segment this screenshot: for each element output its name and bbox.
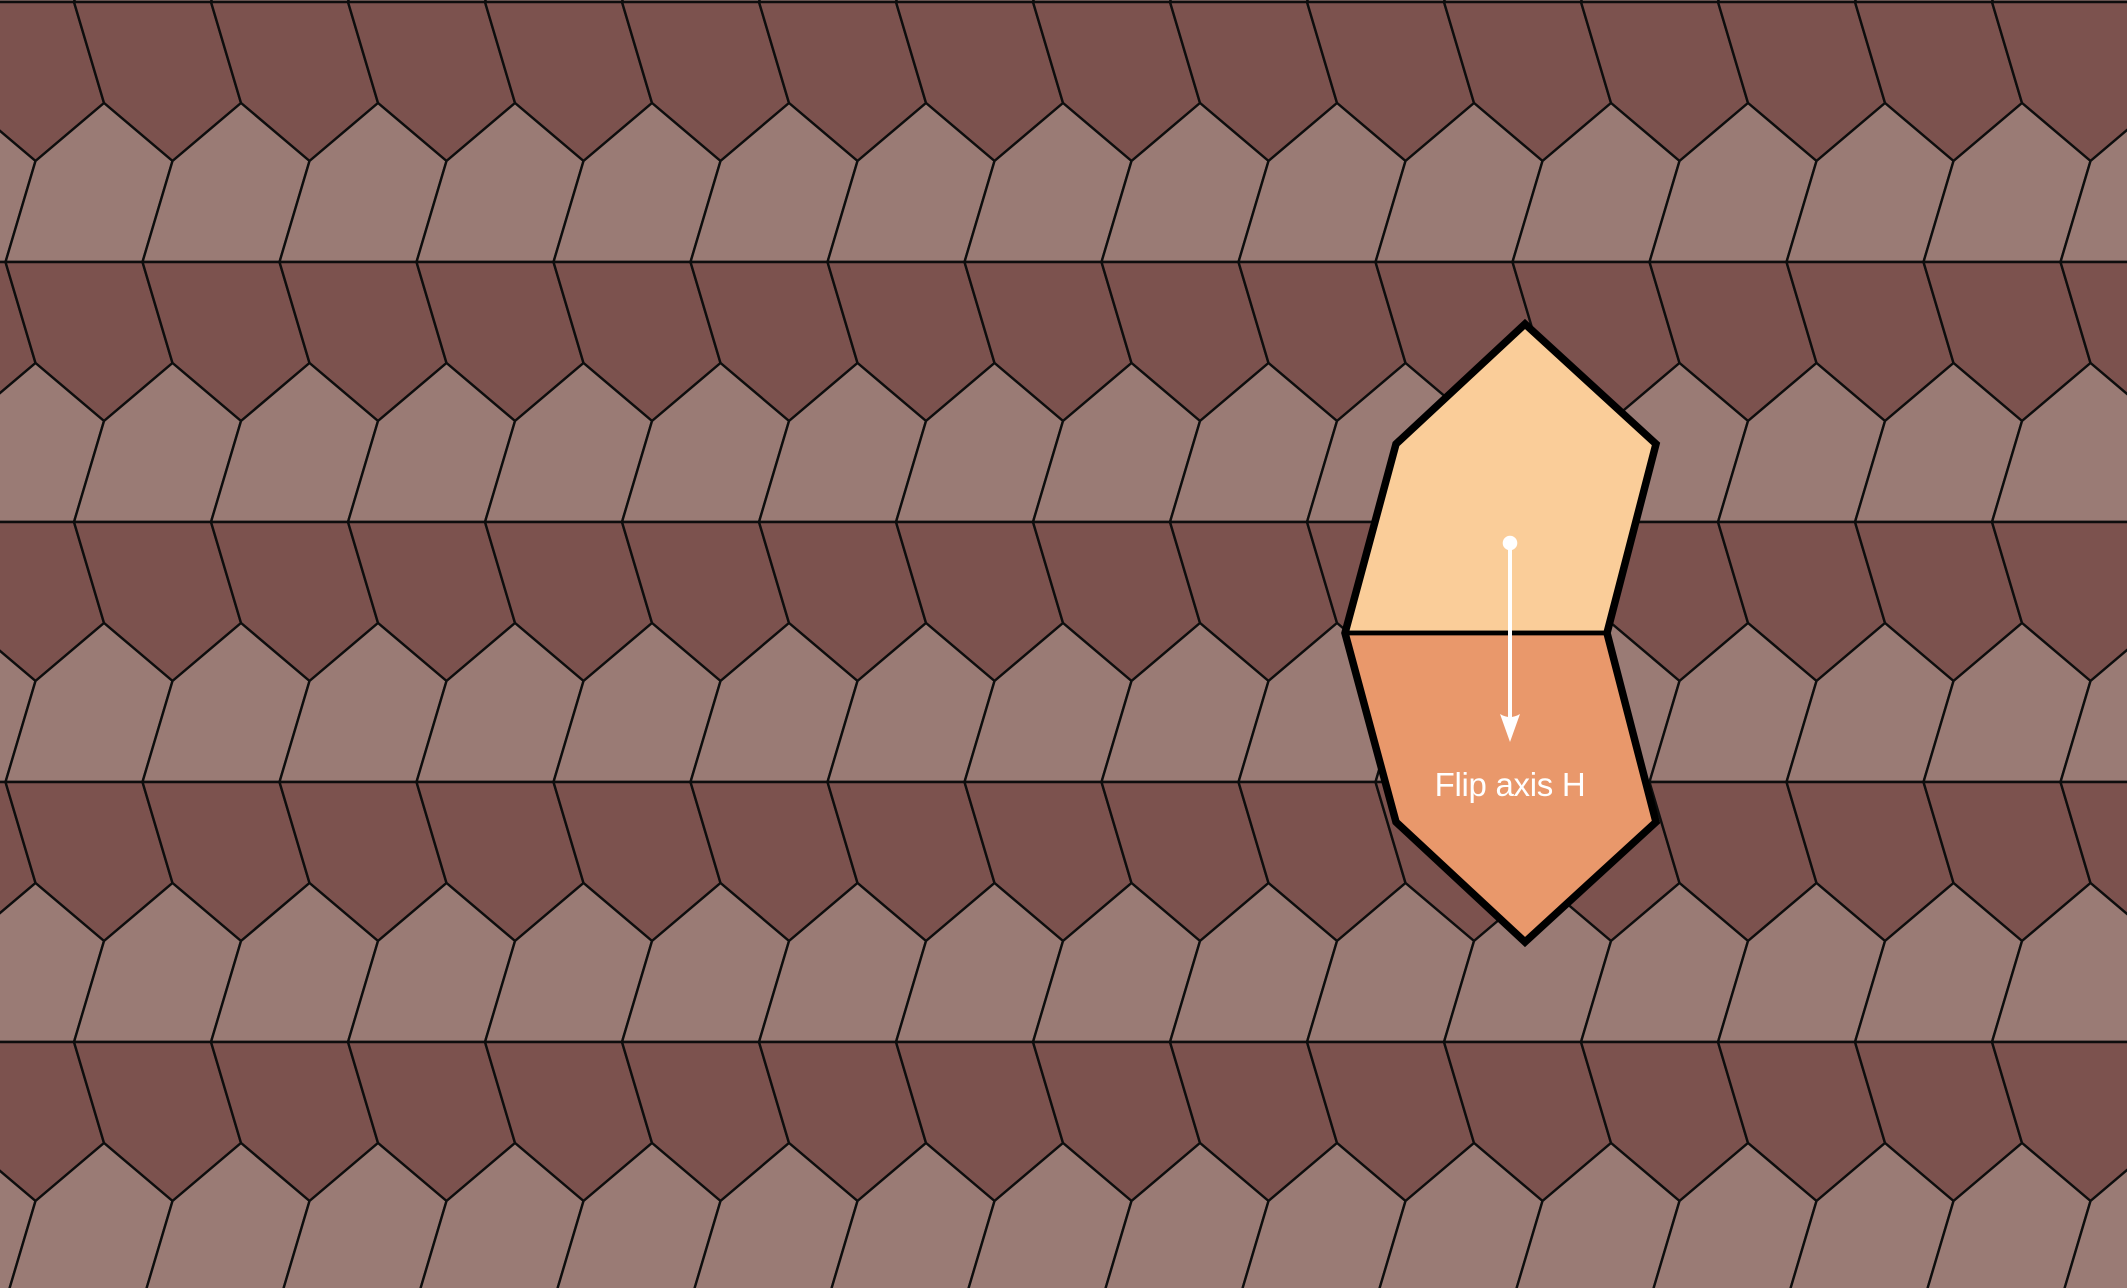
flip-anchor-dot[interactable] [1503, 536, 1518, 551]
tile-pattern [0, 0, 2127, 1288]
flip-axis-label: Flip axis H [1435, 766, 1586, 803]
tessellation-canvas: Flip axis H [0, 0, 2127, 1288]
tiling-svg: Flip axis H [0, 0, 2127, 1288]
